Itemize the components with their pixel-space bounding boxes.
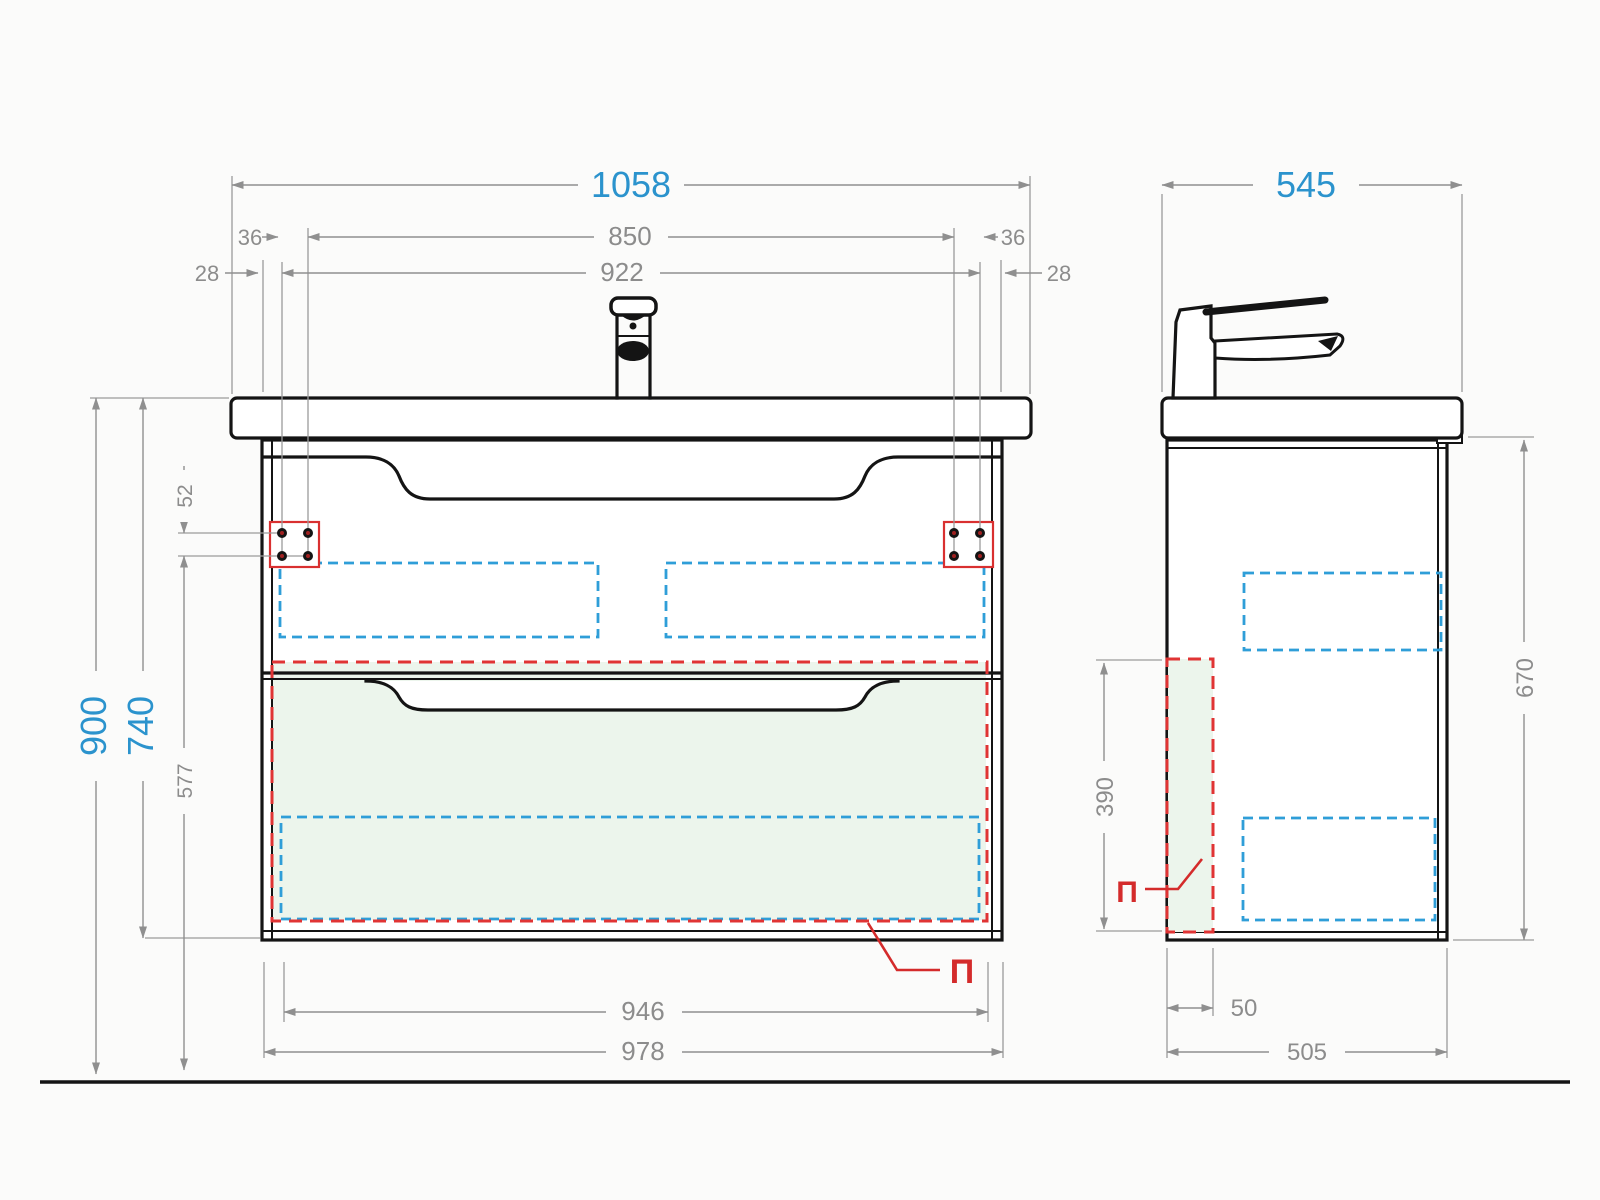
dim-label-depth: 545	[1276, 164, 1336, 205]
dim-52: 52	[171, 466, 197, 533]
dim-850-36: 850 36 36	[238, 221, 1025, 251]
dim-label-side-cabinet-depth: 505	[1287, 1039, 1327, 1066]
front-countertop	[231, 398, 1031, 438]
dim-50: 50	[1167, 995, 1257, 1022]
dim-label-cabinet-height: 740	[120, 696, 161, 756]
mounting-bracket-right	[944, 522, 993, 567]
dim-670: 670	[1510, 440, 1539, 940]
dim-label-hole-to-bottom: 577	[174, 763, 197, 798]
mounting-bracket-left	[270, 522, 319, 567]
side-view: 545 670 390 50 505 П	[1090, 164, 1539, 1066]
dim-label-cabinet-width: 978	[621, 1036, 664, 1066]
dim-label-countertop-width: 1058	[591, 164, 671, 205]
dim-922-28: 922 28 28	[195, 257, 1071, 287]
side-panel-green-zone	[1168, 659, 1213, 932]
dim-label-side-offset-left: 28	[195, 261, 219, 286]
faucet-front-icon	[611, 298, 656, 398]
front-view: 1058 850 36 36 922 28 28 900	[72, 164, 1071, 1074]
dim-545: 545	[1162, 164, 1462, 205]
dim-label-panel-height: 390	[1092, 777, 1119, 817]
dim-label-panel-thickness: 50	[1231, 995, 1258, 1022]
front-panel-label: П	[950, 953, 974, 991]
dim-label-hole-spacing: 52	[174, 484, 197, 507]
dim-1058: 1058	[232, 164, 1030, 205]
drawing-sheet: 1058 850 36 36 922 28 28 900	[0, 0, 1600, 1200]
dim-label-side-cabinet-height: 670	[1512, 658, 1539, 698]
dim-label-mount-span-inner: 850	[608, 221, 651, 251]
dim-740: 740	[119, 398, 161, 938]
vanity-technical-drawing: 1058 850 36 36 922 28 28 900	[0, 0, 1600, 1200]
dim-label-mount-span-outer: 922	[600, 257, 643, 287]
dim-978: 978	[264, 1036, 1003, 1066]
side-panel-label: П	[1116, 876, 1138, 909]
dim-label-edge-offset-right: 36	[1001, 225, 1025, 250]
dim-900: 900	[72, 398, 114, 1074]
dim-577: 577	[171, 556, 197, 1070]
faucet-side-icon	[1173, 300, 1343, 398]
dim-label-total-height: 900	[73, 696, 114, 756]
front-drawer2-groove-recess	[366, 681, 898, 710]
dim-label-edge-offset-left: 36	[238, 225, 262, 250]
dim-label-side-offset-right: 28	[1047, 261, 1071, 286]
dim-390: 390	[1090, 663, 1119, 929]
dim-946: 946	[284, 996, 988, 1026]
dim-label-drawer-box-width: 946	[621, 996, 664, 1026]
side-countertop	[1162, 398, 1462, 438]
dim-505: 505	[1167, 1039, 1447, 1066]
